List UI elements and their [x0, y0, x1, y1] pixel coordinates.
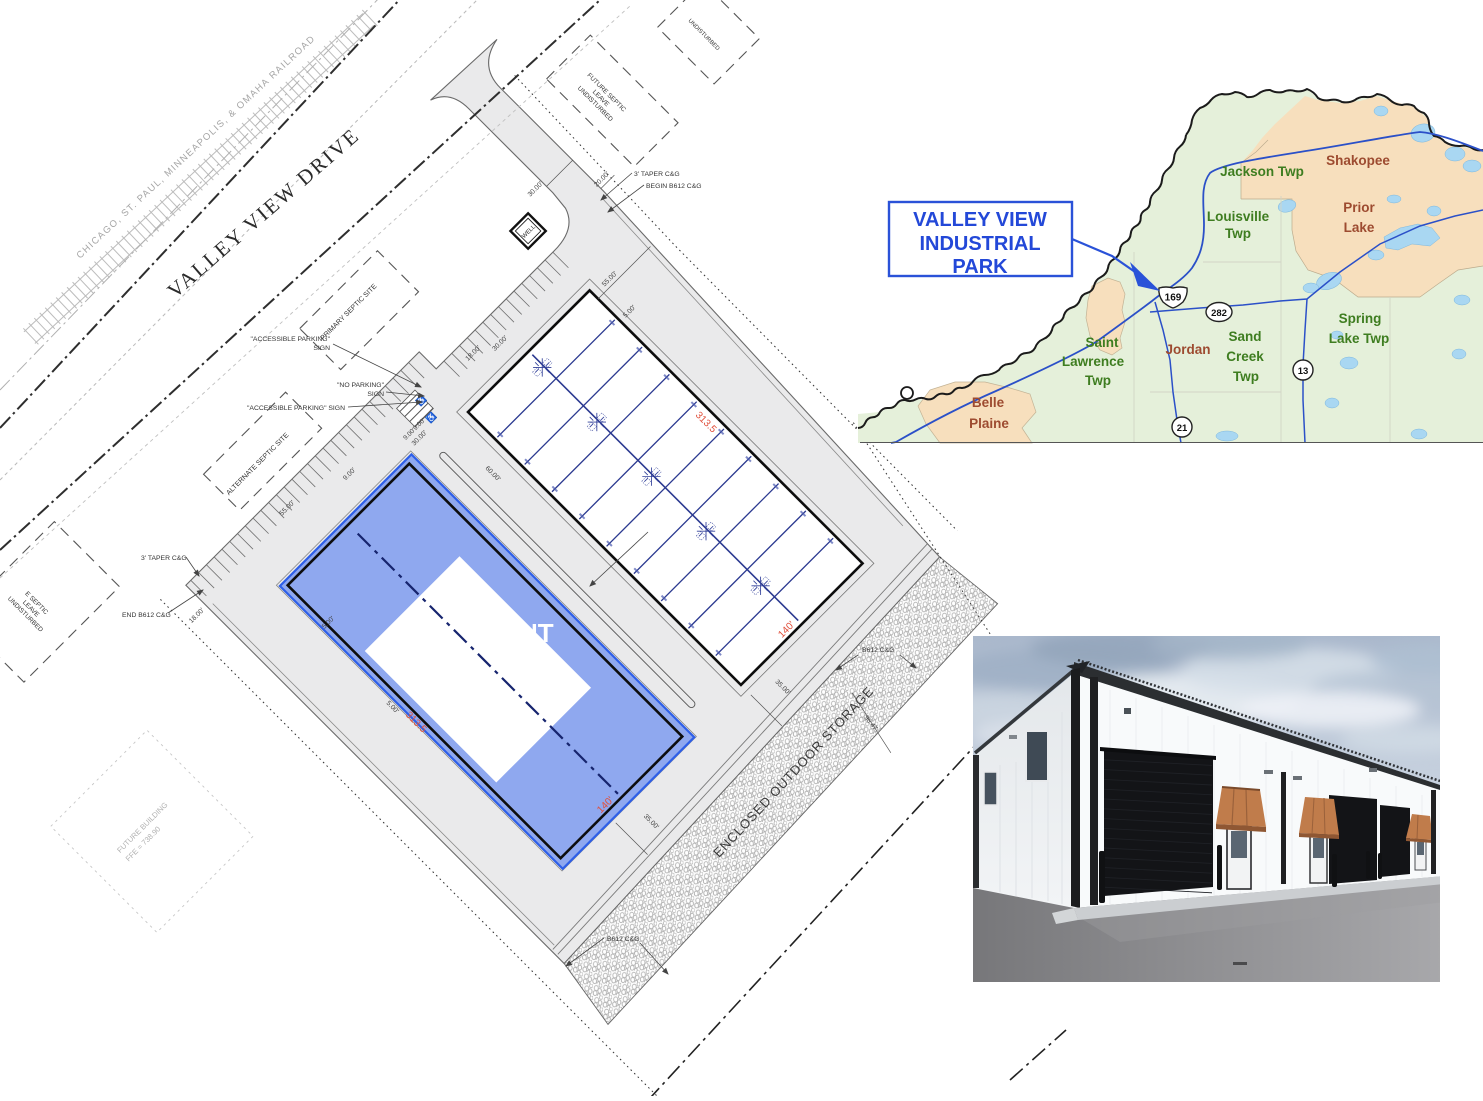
svg-text:END B612 C&G: END B612 C&G	[122, 612, 171, 619]
svg-text:21: 21	[1177, 423, 1188, 434]
svg-text:Lawrence: Lawrence	[1062, 354, 1125, 369]
svg-text:NT: NT	[519, 618, 554, 648]
svg-text:BEGIN B612 C&G: BEGIN B612 C&G	[646, 183, 702, 190]
svg-text:3' TAPER C&G: 3' TAPER C&G	[634, 171, 680, 178]
svg-text:Creek: Creek	[1226, 349, 1264, 364]
svg-text:Jackson Twp: Jackson Twp	[1220, 164, 1304, 179]
svg-text:PARK: PARK	[952, 256, 1008, 278]
svg-text:B612 C&G: B612 C&G	[862, 647, 895, 654]
svg-text:13: 13	[1298, 366, 1309, 377]
svg-text:INDUSTRIAL: INDUSTRIAL	[919, 233, 1040, 255]
svg-text:3' TAPER C&G: 3' TAPER C&G	[141, 555, 187, 562]
svg-text:Twp: Twp	[1225, 226, 1251, 241]
svg-text:Lake Twp: Lake Twp	[1329, 331, 1390, 346]
svg-text:Plaine: Plaine	[969, 416, 1009, 431]
svg-text:Spring: Spring	[1339, 311, 1382, 326]
svg-text:SIGN: SIGN	[367, 391, 384, 398]
svg-text:SIGN: SIGN	[313, 345, 330, 352]
svg-text:Twp: Twp	[1085, 373, 1111, 388]
svg-text:169: 169	[1165, 293, 1182, 304]
svg-text:Saint: Saint	[1085, 335, 1119, 350]
svg-text:"ACCESSIBLE PARKING": "ACCESSIBLE PARKING"	[251, 336, 331, 343]
svg-text:VALLEY VIEW: VALLEY VIEW	[913, 209, 1047, 231]
svg-text:Prior: Prior	[1343, 200, 1375, 215]
svg-text:Belle: Belle	[972, 395, 1005, 410]
svg-text:"NO PARKING": "NO PARKING"	[337, 382, 385, 389]
svg-text:Shakopee: Shakopee	[1326, 153, 1390, 168]
svg-text:B612 C&G: B612 C&G	[607, 936, 640, 943]
svg-text:Louisville: Louisville	[1207, 209, 1270, 224]
svg-text:Jordan: Jordan	[1165, 342, 1210, 357]
svg-text:282: 282	[1211, 308, 1227, 319]
svg-text:Twp: Twp	[1233, 369, 1259, 384]
svg-text:"ACCESSIBLE PARKING" SIGN: "ACCESSIBLE PARKING" SIGN	[247, 405, 345, 412]
svg-text:Sand: Sand	[1228, 329, 1261, 344]
svg-text:Lake: Lake	[1344, 220, 1375, 235]
